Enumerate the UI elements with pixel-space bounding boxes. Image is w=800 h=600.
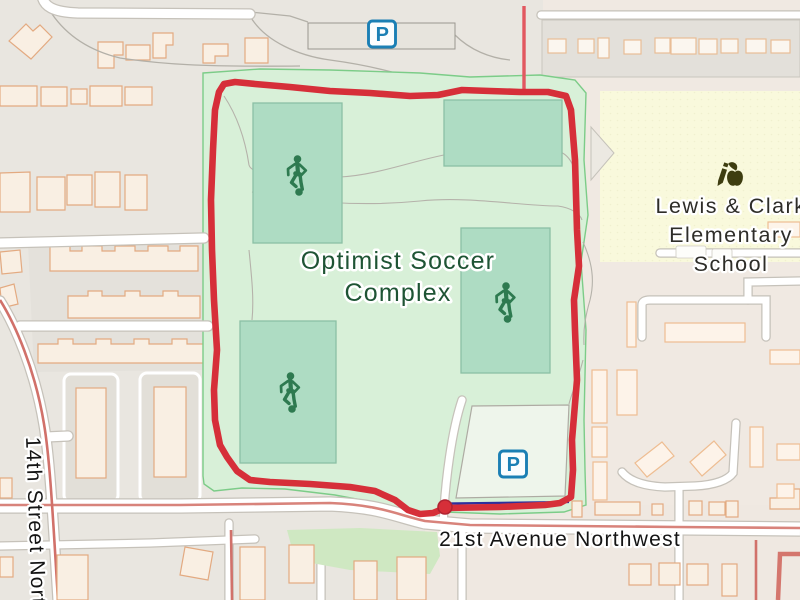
svg-text:School: School: [694, 252, 769, 276]
svg-text:Optimist Soccer: Optimist Soccer: [301, 247, 495, 275]
svg-text:Complex: Complex: [344, 279, 451, 307]
svg-text:21st Avenue Northwest: 21st Avenue Northwest: [439, 528, 681, 551]
svg-text:Elementary: Elementary: [669, 223, 793, 247]
svg-text:Lewis & Clark: Lewis & Clark: [656, 194, 800, 218]
